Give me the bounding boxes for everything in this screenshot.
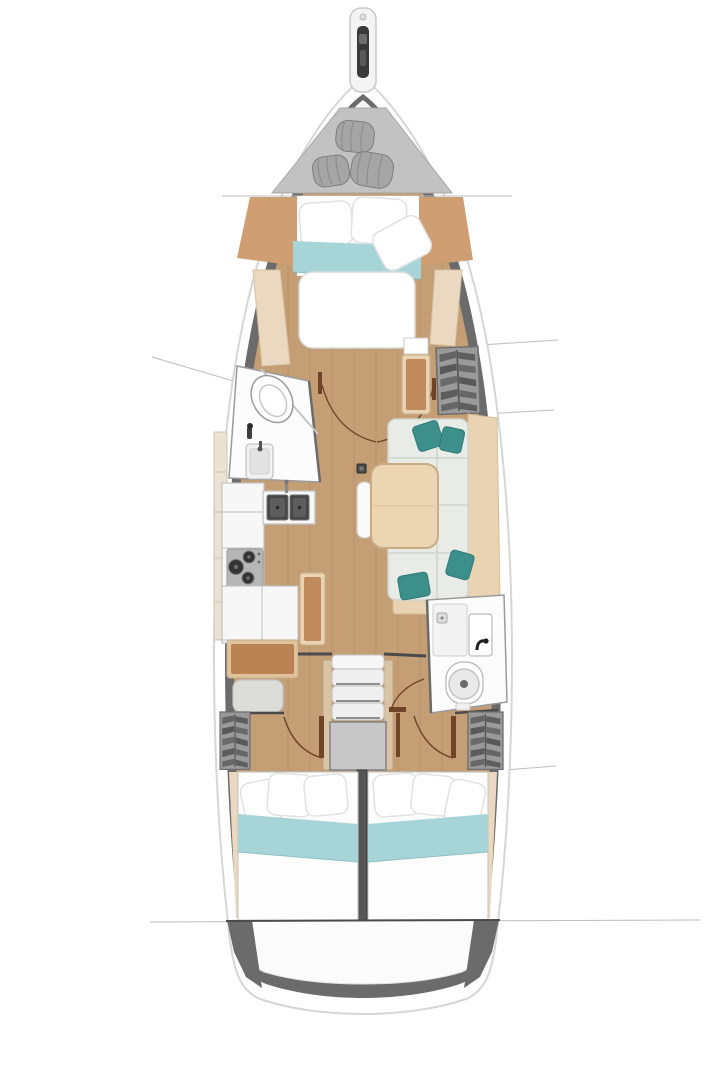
headboard-panel-port: [237, 197, 297, 266]
three-burner-stove: [227, 549, 263, 587]
bow-fitting: [360, 14, 366, 20]
door-leaf: [319, 716, 324, 758]
sail-bag-body: [335, 119, 376, 154]
section-line-stern-dark: [226, 920, 500, 921]
floor-plan-canvas: [0, 0, 713, 1080]
entry-sill: [332, 655, 384, 669]
callout-line-starboard-aft: [505, 766, 556, 770]
washbasin: [246, 441, 273, 479]
forward-cabin: [237, 196, 473, 366]
door-leaf: [451, 716, 456, 758]
basin-tap: [258, 447, 263, 452]
bench-seat: [304, 577, 321, 641]
transom-platform: [240, 920, 486, 984]
wardrobe-clothes: [468, 712, 503, 769]
wardrobe-clothes: [436, 347, 480, 415]
nav-seat: [233, 680, 283, 712]
bed-duvet: [299, 272, 415, 348]
pillow: [299, 200, 354, 248]
stool-bench: [357, 482, 372, 538]
basin-bowl: [250, 449, 269, 474]
aft-bed-starboard: [368, 772, 488, 920]
toilet-base: [456, 703, 470, 710]
headboard-panel-starboard: [418, 197, 473, 266]
hatch-latch: [360, 467, 364, 471]
aft-bed-port: [238, 772, 358, 920]
faucet-head: [483, 638, 488, 643]
wardrobe-aft-starboard: [468, 712, 503, 769]
forward-bench: [402, 355, 430, 414]
yacht-floor-plan-illustration: [0, 0, 713, 1080]
aft-cabins: [229, 770, 497, 920]
sink-drain: [276, 506, 280, 510]
bench-seat: [406, 359, 426, 410]
basin-bowl: [469, 614, 492, 656]
anchor-shank: [360, 50, 366, 66]
faucet-head: [284, 480, 288, 484]
aft-head: [427, 595, 507, 713]
burner-cap: [247, 555, 251, 559]
stove-knob: [258, 553, 261, 556]
wardrobe-forward-starboard: [436, 347, 480, 415]
callout-line-starboard-upper: [481, 340, 558, 345]
mixer-head: [247, 423, 253, 429]
sail-bag: [311, 154, 351, 189]
bulkhead-stub-starboard: [384, 654, 426, 656]
drain-dot: [441, 617, 444, 620]
anchor-roller: [359, 34, 367, 44]
wardrobe-aft-port: [220, 712, 250, 769]
door-leaf: [396, 713, 400, 757]
shelf-slab: [404, 338, 428, 354]
floor-hatch: [357, 464, 366, 473]
sink-drain: [298, 506, 302, 510]
toilet-flush: [460, 680, 468, 688]
washbasin: [469, 614, 492, 656]
forward-double-bed: [293, 196, 435, 348]
chart-desk: [227, 640, 298, 678]
tall-bench: [300, 573, 325, 645]
accent-cushion: [439, 426, 466, 454]
desk-top: [231, 644, 294, 674]
door-leaf: [318, 372, 322, 394]
engine-compartment: [330, 722, 386, 770]
forward-head: [229, 366, 320, 482]
burner-cap: [246, 576, 250, 580]
bowsprit-anchor-roller: [350, 8, 376, 92]
stove-knob: [258, 561, 261, 564]
lower-cabinet: [222, 586, 298, 640]
shower-tray: [433, 604, 467, 656]
burner-cap: [234, 565, 238, 569]
accent-cushion: [397, 572, 431, 601]
tray: [433, 604, 467, 656]
pillow: [303, 773, 348, 817]
sail-bag: [335, 119, 376, 154]
sofa-backrest-starboard: [468, 414, 500, 600]
wardrobe-clothes: [220, 712, 250, 769]
dining-table: [371, 464, 438, 548]
